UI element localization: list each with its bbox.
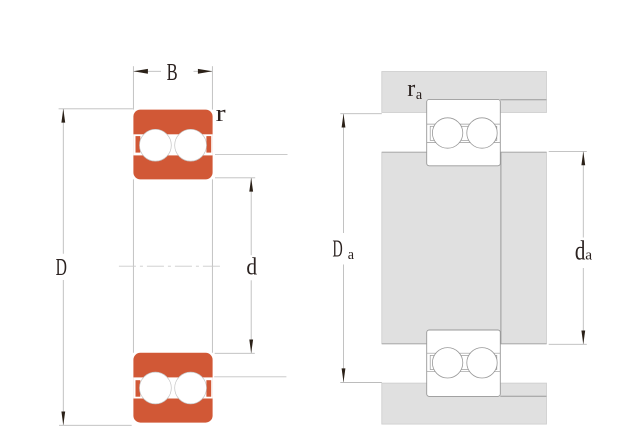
svg-text:D: D bbox=[56, 255, 67, 281]
svg-text:r: r bbox=[407, 76, 415, 102]
svg-text:a: a bbox=[585, 248, 592, 264]
svg-text:d: d bbox=[246, 255, 257, 281]
svg-text:a: a bbox=[348, 247, 355, 263]
svg-text:a: a bbox=[416, 87, 423, 103]
svg-text:d: d bbox=[575, 236, 586, 266]
svg-text:r: r bbox=[216, 101, 226, 127]
svg-text:D: D bbox=[333, 237, 343, 263]
svg-text:B: B bbox=[167, 60, 178, 86]
